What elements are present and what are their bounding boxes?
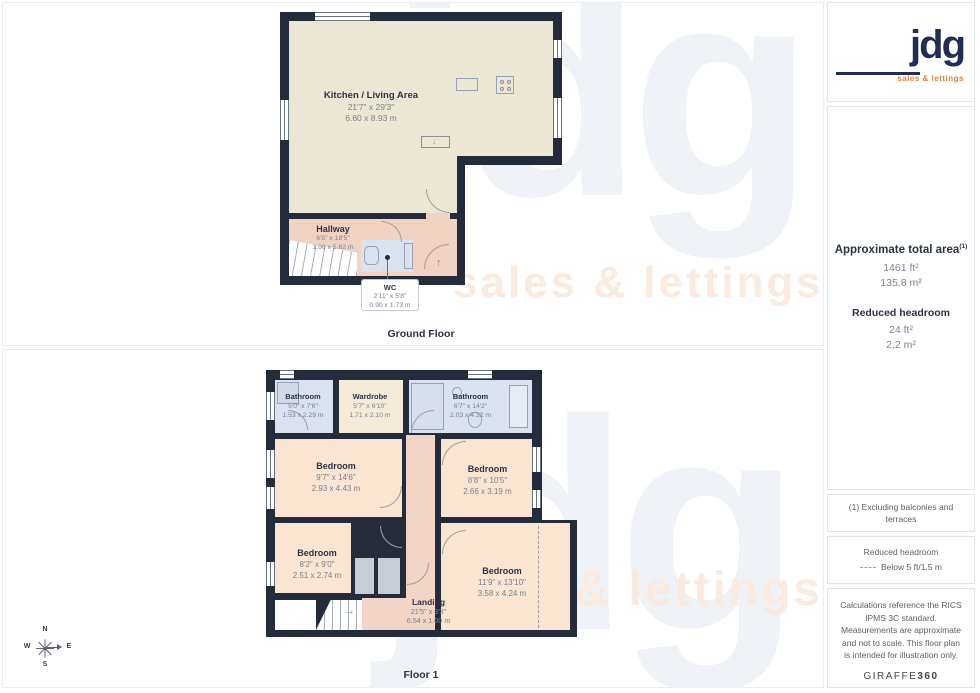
area-footnote-mark: (1)	[959, 243, 967, 250]
step-down-arrow-icon: ↓	[432, 136, 436, 147]
room-label-bathroom-right: Bathroom 6'7" x 14'2" 2.03 x 4.32 m	[428, 392, 513, 420]
window	[532, 490, 541, 508]
window	[532, 447, 541, 472]
compass-east-label: E	[64, 643, 74, 650]
compass-south-label: S	[40, 661, 50, 668]
entrance-arrow-icon: ↑	[436, 258, 442, 269]
kitchen-sink-icon	[456, 78, 478, 91]
ground-floor-label: Ground Floor	[341, 328, 501, 340]
floor1-label: Floor 1	[341, 669, 501, 681]
closet-right	[378, 558, 400, 594]
window	[280, 370, 294, 379]
kitchen-hob-icon	[496, 76, 514, 94]
legend-row: Below 5 ft/1.5 m	[860, 560, 942, 575]
room-label-bedroom-bottom-right: Bedroom 11'9" x 13'10" 3.58 x 4.24 m	[456, 565, 548, 599]
window	[553, 40, 562, 58]
compass-west-label: W	[22, 643, 32, 650]
room-label-kitchen: Kitchen / Living Area 21'7" x 29'3" 6.60…	[290, 90, 452, 124]
window	[266, 562, 275, 586]
compass-east-arrowhead-icon	[57, 644, 62, 650]
disclaimer-text: Calculations reference the RICS IPMS 3C …	[839, 599, 963, 662]
reduced-headroom-title: Reduced headroom	[852, 307, 950, 319]
legend-value: Below 5 ft/1.5 m	[881, 562, 942, 572]
wc-callout-line	[387, 260, 388, 280]
logo-tagline: sales & lettings	[897, 74, 964, 83]
room-label-bedroom-mid-right: Bedroom 8'8" x 10'5" 2.66 x 3.19 m	[445, 463, 530, 497]
sidebar-legend-box: Reduced headroom Below 5 ft/1.5 m	[827, 536, 975, 584]
room-label-landing: Landing 21'5" x 3'3" 6.54 x 1.00 m	[386, 597, 471, 625]
compass-east-arm	[45, 647, 57, 648]
reduced-headroom-m: 2.2 m²	[886, 338, 916, 353]
wc-callout: WC 2'11" x 5'8" 0.90 x 1.73 m	[361, 279, 419, 311]
area-title: Approximate total area(1)	[835, 243, 968, 256]
giraffe360-brand: GIRAFFE360	[839, 671, 963, 684]
legend-title: Reduced headroom	[864, 545, 939, 560]
window	[280, 100, 289, 140]
total-area-m: 135.8 m²	[880, 276, 921, 291]
floorplan-page: jdg sales & lettings jdg sales & letting…	[0, 0, 980, 693]
footnote-text: (1) Excluding balconies and terraces	[836, 501, 966, 525]
room-label-bedroom-mid-left: Bedroom 9'7" x 14'6" 2.93 x 4.43 m	[295, 460, 377, 494]
sidebar-disclaimer-box: Calculations reference the RICS IPMS 3C …	[827, 588, 975, 688]
room-label-bedroom-bottom-left: Bedroom 8'2" x 9'0" 2.51 x 2.74 m	[276, 547, 358, 581]
compass-north-label: N	[40, 626, 50, 633]
stairwell-void	[275, 600, 316, 630]
window	[266, 450, 275, 478]
sidebar-logo-box: jdg sales & lettings	[827, 2, 975, 102]
window	[553, 98, 562, 138]
total-area-ft: 1461 ft²	[883, 261, 919, 276]
room-label-bathroom-left: Bathroom 5'0" x 7'6" 1.53 x 2.29 m	[272, 392, 334, 420]
window	[315, 12, 370, 21]
room-label-hallway: Hallway 6'5" x 18'5" 1.96 x 5.62 m	[298, 224, 368, 252]
reduced-headroom-ft: 24 ft²	[889, 323, 913, 338]
window	[468, 370, 492, 379]
logo-jdg: jdg	[910, 25, 964, 65]
kitchen-hallway-door-gap	[426, 213, 450, 219]
sidebar-footnote-box: (1) Excluding balconies and terraces	[827, 494, 975, 532]
wc-radiator-icon	[404, 243, 413, 269]
stairs-direction-arrow-icon: →	[344, 606, 355, 617]
window	[266, 487, 275, 509]
dashed-line-icon	[860, 567, 876, 568]
room-label-wardrobe: Wardrobe 5'7" x 6'10" 1.71 x 2.10 m	[334, 392, 406, 420]
sidebar-area-box: Approximate total area(1) 1461 ft² 135.8…	[827, 106, 975, 490]
